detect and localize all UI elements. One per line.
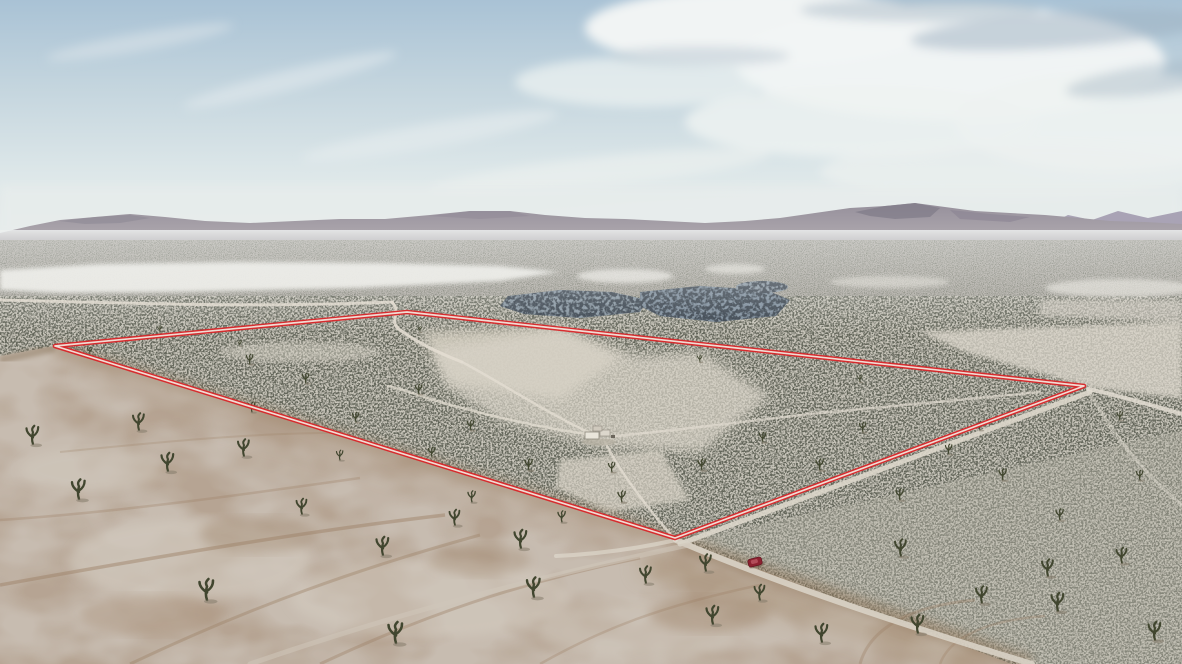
aerial-photo-canvas: Aerial drone photo of a high-desert vall… bbox=[0, 0, 1182, 664]
cloud-shadow bbox=[610, 46, 790, 66]
depth-haze bbox=[0, 240, 1182, 335]
aerial-photo: Aerial drone photo of a high-desert vall… bbox=[0, 0, 1182, 664]
sky bbox=[0, 0, 1182, 248]
dark-dirt-patch bbox=[430, 544, 530, 576]
structure-block bbox=[593, 426, 602, 431]
cleared-area bbox=[220, 342, 380, 362]
structure-debris bbox=[582, 439, 616, 446]
light-dirt-patch bbox=[20, 448, 160, 492]
structure-block bbox=[585, 432, 599, 439]
structure-block bbox=[611, 435, 615, 438]
light-dirt-patch bbox=[290, 558, 570, 638]
dark-dirt-patch bbox=[80, 595, 220, 635]
